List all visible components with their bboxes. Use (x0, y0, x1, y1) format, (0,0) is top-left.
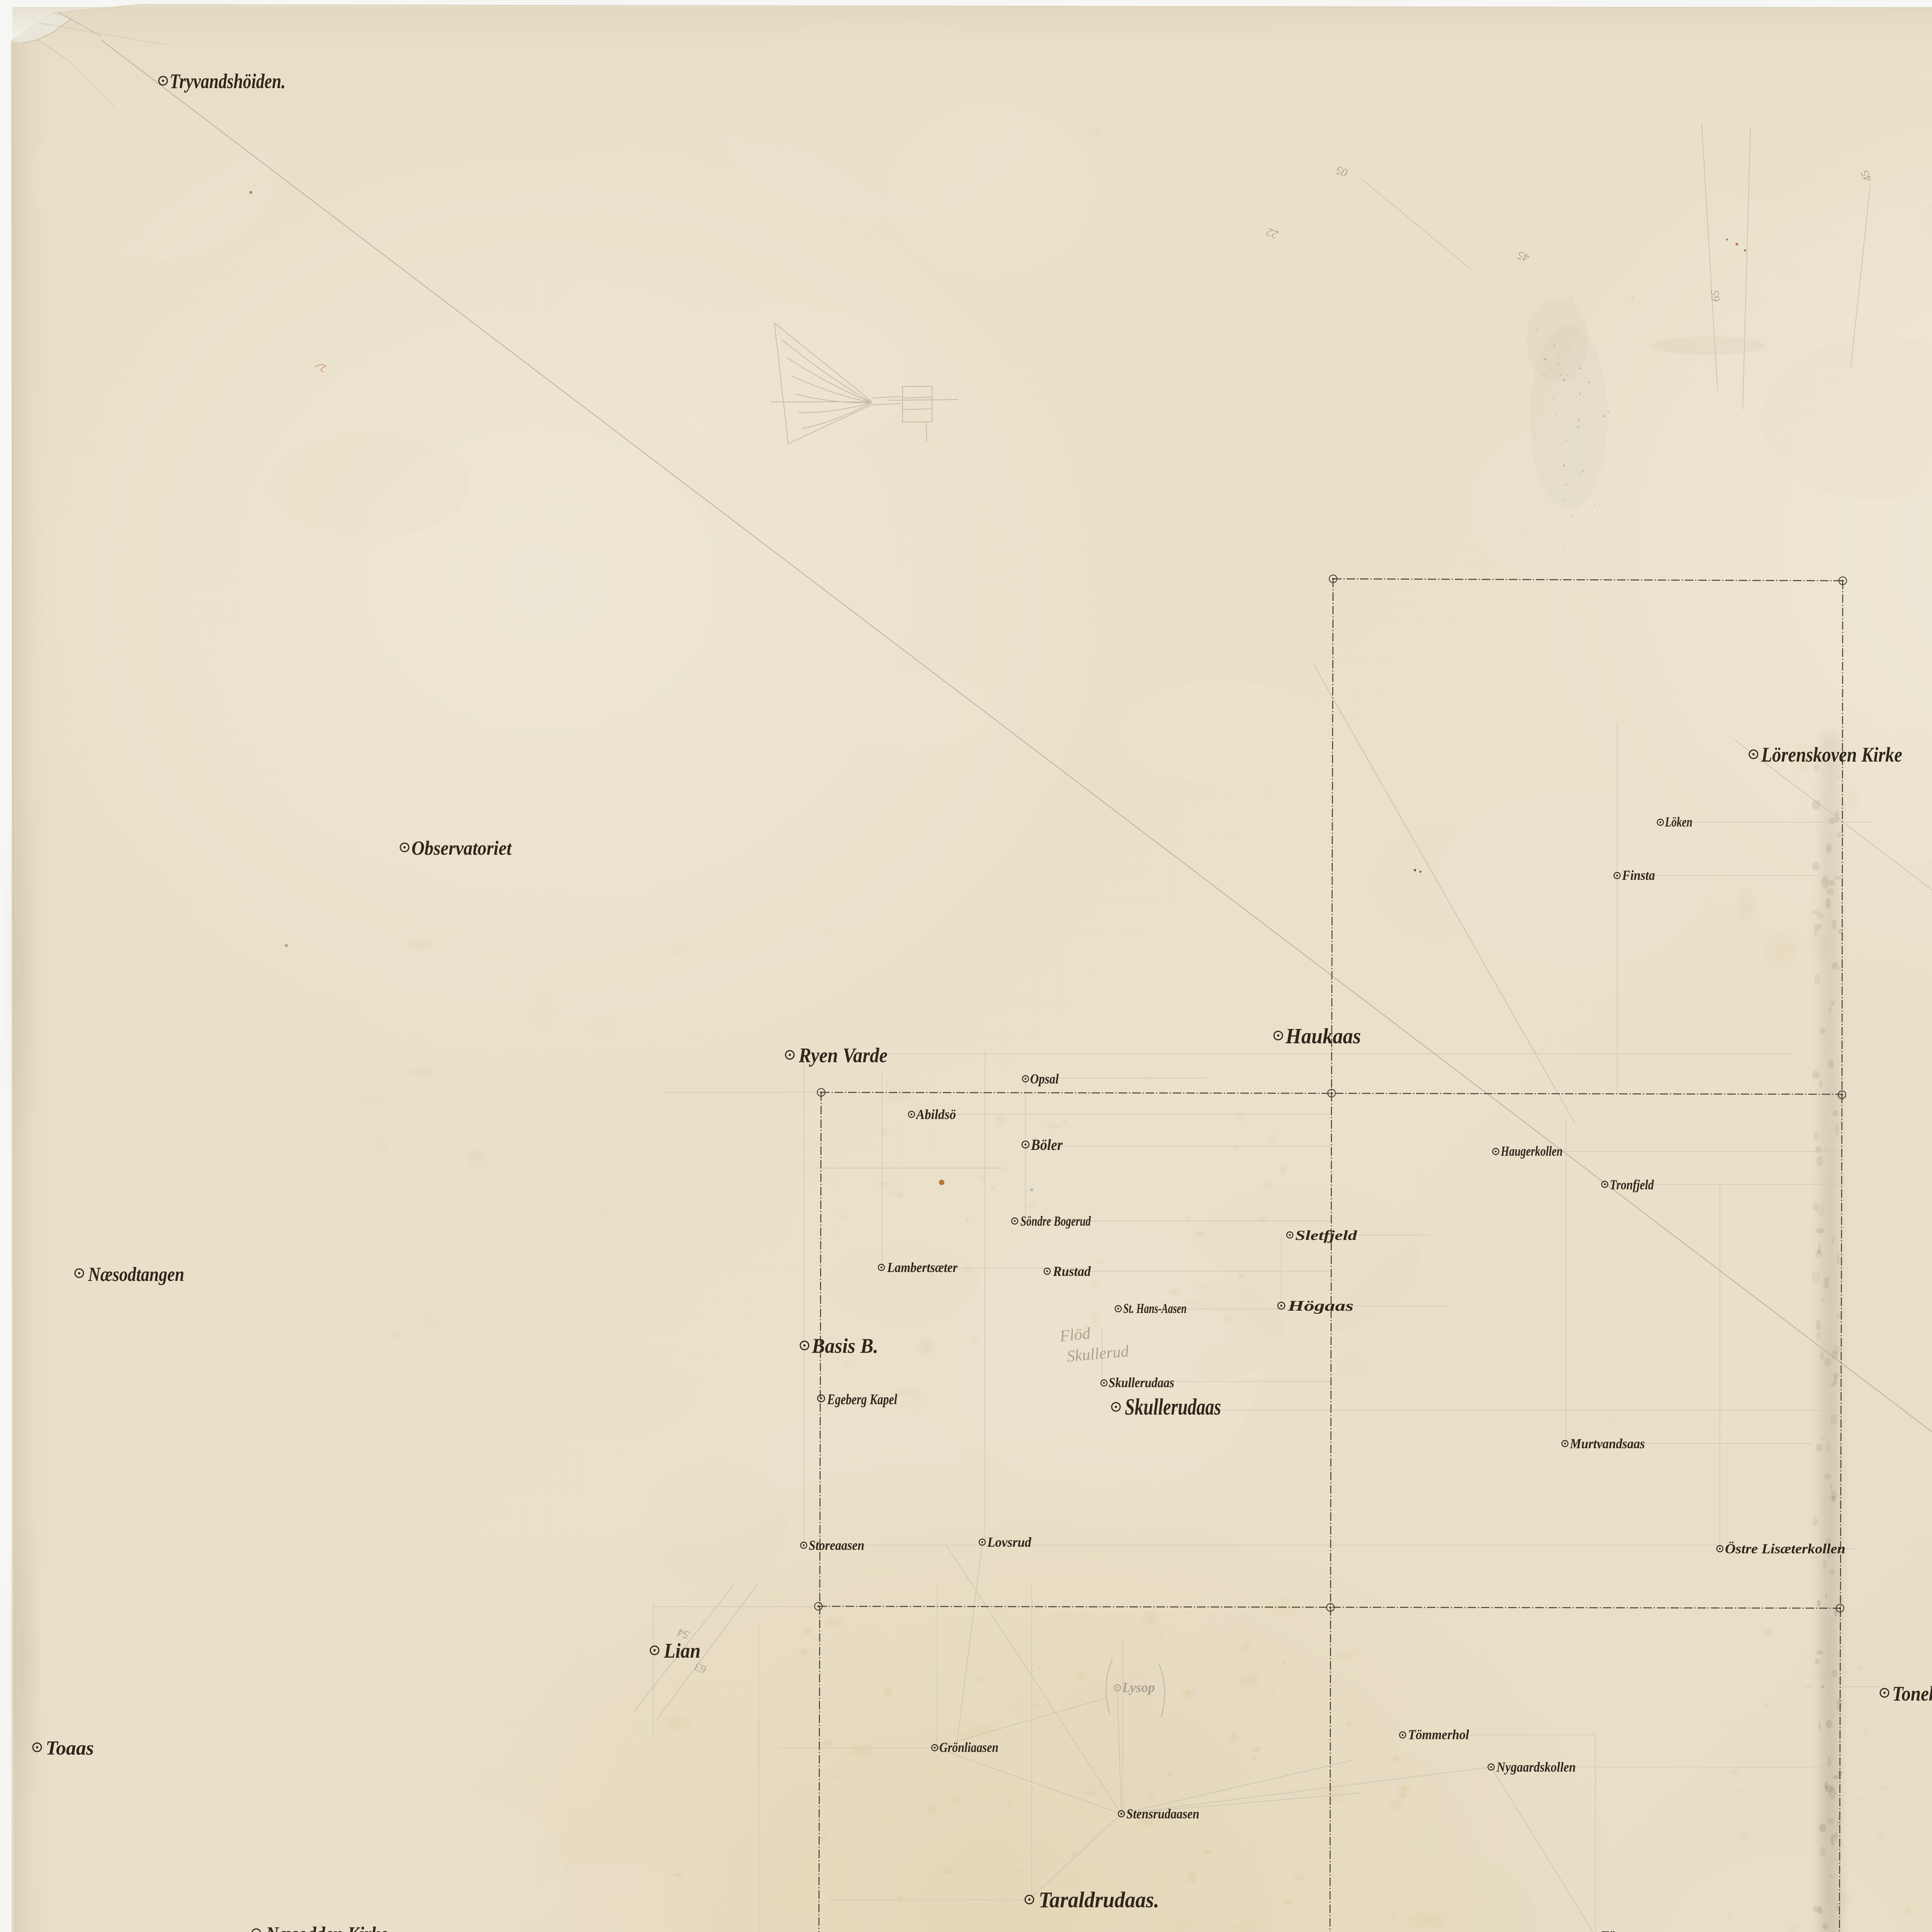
svg-text:Taraldrudaas.: Taraldrudaas. (1039, 1887, 1159, 1912)
svg-text:Lambertsæter: Lambertsæter (887, 1260, 958, 1275)
svg-text:Nygaardskollen: Nygaardskollen (1496, 1759, 1576, 1775)
svg-text:Lysop: Lysop (1122, 1680, 1155, 1695)
svg-text:Basis B.: Basis B. (811, 1334, 878, 1357)
svg-text:Haugerkollen: Haugerkollen (1500, 1143, 1563, 1159)
svg-text:Tonekollen: Tonekollen (1892, 1682, 1932, 1705)
svg-text:Egeberg Kapel: Egeberg Kapel (827, 1391, 897, 1408)
svg-text:Toaas: Toaas (46, 1737, 94, 1759)
svg-text:Storeaasen: Storeaasen (809, 1537, 864, 1553)
svg-text:Östre Lisæterkollen: Östre Lisæterkollen (1725, 1541, 1845, 1556)
svg-text:Stensrudaasen: Stensrudaasen (1126, 1806, 1199, 1821)
svg-text:Lovsrud: Lovsrud (987, 1534, 1032, 1550)
svg-text:Finsta: Finsta (1622, 867, 1655, 883)
svg-text:Tronfjeld: Tronfjeld (1610, 1177, 1654, 1192)
svg-text:Söndre Bogerud: Söndre Bogerud (1020, 1213, 1091, 1229)
svg-text:Tömmerhol: Tömmerhol (1408, 1727, 1469, 1742)
svg-text:Observatoriet: Observatoriet (412, 837, 512, 859)
svg-text:Ryen Varde: Ryen Varde (798, 1044, 888, 1067)
svg-text:Næsodden Kirke: Næsodden Kirke (265, 1923, 388, 1932)
svg-text:Högaas: Högaas (1287, 1298, 1354, 1314)
svg-text:Skullerudaas: Skullerudaas (1109, 1375, 1174, 1390)
svg-text:Abildsö: Abildsö (915, 1107, 956, 1122)
svg-text:Rustad: Rustad (1053, 1264, 1091, 1279)
svg-text:Löken: Löken (1665, 814, 1692, 830)
svg-text:Tömmeraasen: Tömmeraasen (1600, 1928, 1679, 1932)
svg-text:Haukaas: Haukaas (1285, 1024, 1361, 1048)
svg-text:Sletfjeld: Sletfjeld (1295, 1228, 1357, 1243)
svg-text:St. Hans-Aasen: St. Hans-Aasen (1123, 1301, 1187, 1316)
svg-text:Opsal: Opsal (1030, 1071, 1059, 1087)
svg-text:Flöd: Flöd (1058, 1325, 1092, 1345)
svg-text:Lian: Lian (663, 1639, 701, 1662)
svg-text:Skullerudaas: Skullerudaas (1125, 1394, 1221, 1420)
svg-text:Tryvandshöiden.: Tryvandshöiden. (170, 70, 286, 93)
svg-text:Böler: Böler (1031, 1136, 1063, 1153)
svg-text:65: 65 (1708, 290, 1722, 303)
svg-text:Næsodtangen: Næsodtangen (88, 1264, 184, 1286)
svg-text:Grönliaasen: Grönliaasen (939, 1740, 998, 1755)
svg-text:Murtvandsaas: Murtvandsaas (1570, 1436, 1645, 1451)
svg-text:Lörenskoven Kirke: Lörenskoven Kirke (1761, 743, 1902, 766)
